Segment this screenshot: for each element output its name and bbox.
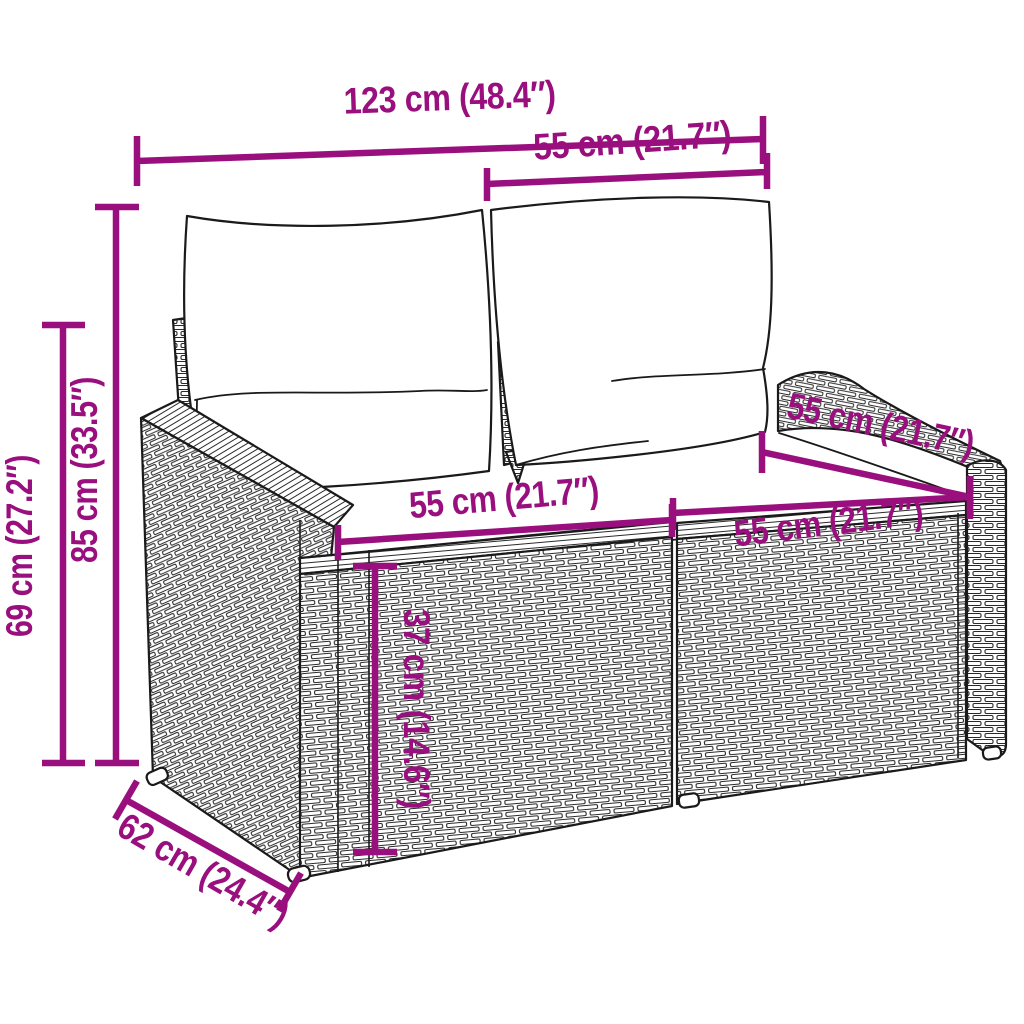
foot-front-right [982,746,1001,760]
dim-label-backrest-width: 55 cm (21.7″) [532,113,732,168]
diagram-canvas: 123 cm (48.4″) 55 cm (21.7″) 85 cm (33.5… [0,0,1024,1024]
base-front-left [300,537,672,878]
foot-front-center [678,793,700,809]
dim-label-armrest-height: 69 cm (27.2″) [0,455,40,637]
dim-label-total-height: 85 cm (33.5″) [64,377,105,563]
dim-backrest-width: 55 cm (21.7″) [487,113,767,201]
dim-label-seat-depth: 55 cm (21.7″) [783,385,977,465]
back-cushion-right [491,197,772,465]
product-dimension-diagram: 123 cm (48.4″) 55 cm (21.7″) 85 cm (33.5… [0,0,1024,1024]
dim-total-height: 85 cm (33.5″) [64,207,139,763]
base-front-right [677,515,966,804]
dim-label-total-width: 123 cm (48.4″) [343,73,556,121]
sofa-illustration [141,197,1006,883]
dim-label-seat-height: 37 cm (14.6″) [396,609,437,809]
